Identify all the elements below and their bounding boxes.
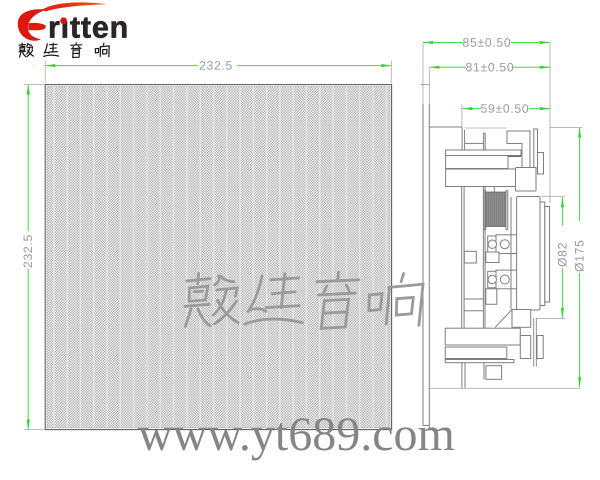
svg-text:rıtten: rıtten xyxy=(48,11,129,45)
svg-text:59±0.50: 59±0.50 xyxy=(480,102,529,116)
svg-text:232.5: 232.5 xyxy=(21,234,35,268)
svg-text:232.5: 232.5 xyxy=(199,59,233,73)
svg-text:www.yt689.com: www.yt689.com xyxy=(138,408,455,461)
svg-text:81±0.50: 81±0.50 xyxy=(465,60,514,74)
svg-text:85±0.50: 85±0.50 xyxy=(462,36,511,50)
svg-text:Ø175: Ø175 xyxy=(573,239,587,272)
svg-text:Ø82: Ø82 xyxy=(556,242,570,267)
